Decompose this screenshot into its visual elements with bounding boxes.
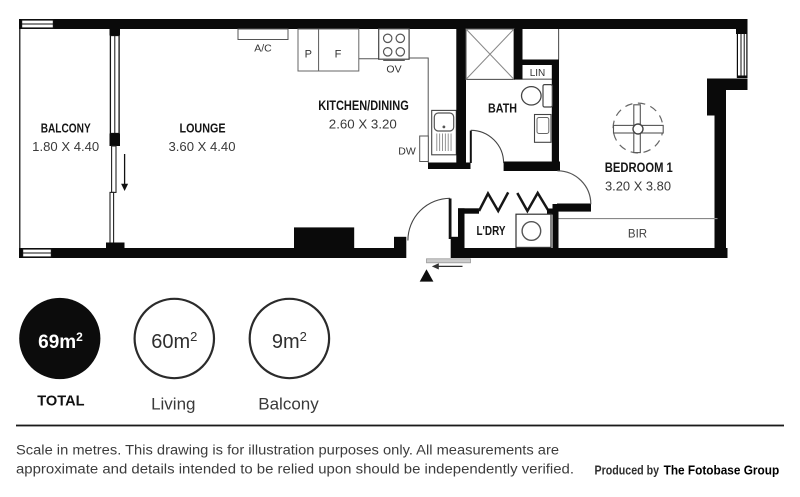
- svg-text:LOUNGE: LOUNGE: [180, 121, 226, 136]
- svg-text:KITCHEN/DINING: KITCHEN/DINING: [318, 98, 409, 113]
- svg-text:A/C: A/C: [254, 43, 272, 55]
- svg-text:Balcony: Balcony: [258, 395, 319, 414]
- svg-text:TOTAL: TOTAL: [37, 393, 84, 410]
- svg-text:Living: Living: [151, 395, 195, 414]
- svg-text:BIR: BIR: [628, 229, 647, 241]
- svg-text:P: P: [305, 49, 312, 61]
- svg-text:LIN: LIN: [530, 68, 546, 79]
- svg-text:F: F: [335, 49, 342, 61]
- svg-text:3.60 X 4.40: 3.60 X 4.40: [169, 139, 236, 154]
- svg-text:OV: OV: [386, 64, 401, 76]
- svg-text:Produced by: Produced by: [595, 463, 660, 478]
- svg-text:DW: DW: [398, 146, 416, 158]
- svg-text:The Fotobase Group: The Fotobase Group: [664, 463, 780, 478]
- svg-text:1.80 X 4.40: 1.80 X 4.40: [32, 139, 99, 154]
- svg-text:L'DRY: L'DRY: [477, 223, 506, 238]
- svg-text:BALCONY: BALCONY: [41, 121, 91, 136]
- svg-text:2.60 X 3.20: 2.60 X 3.20: [329, 117, 397, 132]
- svg-text:3.20 X 3.80: 3.20 X 3.80: [605, 179, 671, 194]
- svg-text:BEDROOM 1: BEDROOM 1: [605, 160, 673, 175]
- svg-text:Scale in metres. This drawing: Scale in metres. This drawing is for ill…: [16, 443, 559, 458]
- svg-text:approximate and details intend: approximate and details intended to be r…: [16, 462, 574, 477]
- svg-text:BATH: BATH: [488, 101, 517, 116]
